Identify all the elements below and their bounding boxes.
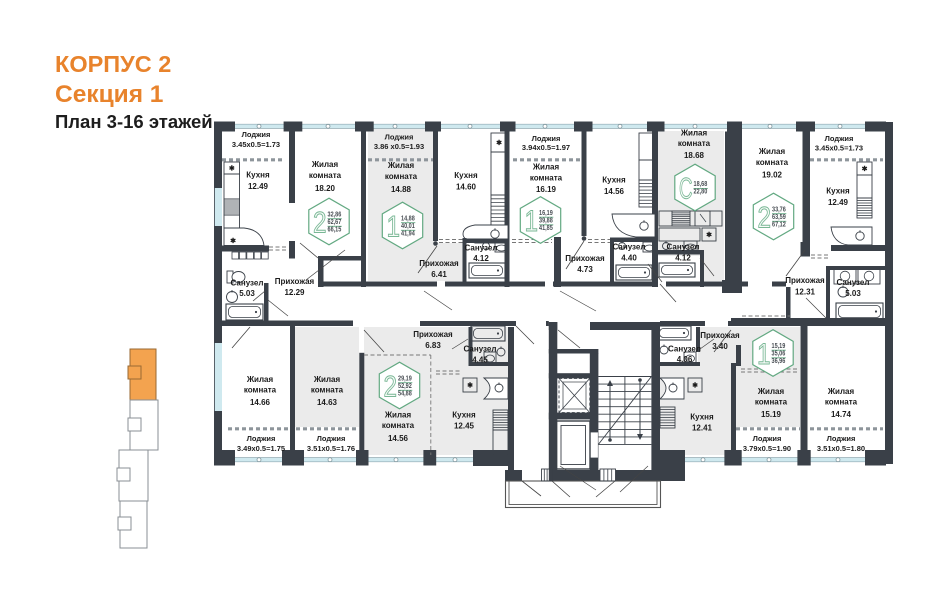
- svg-text:12.49: 12.49: [828, 198, 849, 207]
- svg-text:✱: ✱: [692, 382, 698, 390]
- svg-text:КОРПУС 2: КОРПУС 2: [55, 51, 171, 77]
- svg-text:18,68: 18,68: [694, 181, 708, 188]
- svg-text:2: 2: [313, 207, 327, 240]
- svg-text:комната: комната: [825, 398, 858, 407]
- svg-text:3.45х0.5=1.73: 3.45х0.5=1.73: [815, 143, 863, 152]
- svg-text:16,19: 16,19: [539, 210, 553, 217]
- svg-text:Жилая: Жилая: [246, 375, 274, 384]
- svg-text:Санузел: Санузел: [668, 345, 701, 354]
- svg-text:План 3-16 этажей: План 3-16 этажей: [55, 111, 213, 132]
- svg-text:4.12: 4.12: [675, 254, 691, 263]
- svg-text:12.41: 12.41: [692, 424, 713, 433]
- svg-text:Жилая: Жилая: [387, 161, 415, 170]
- svg-text:✱: ✱: [496, 139, 502, 147]
- svg-text:Жилая: Жилая: [311, 160, 339, 169]
- svg-text:комната: комната: [382, 421, 415, 430]
- svg-text:12.31: 12.31: [795, 288, 816, 297]
- svg-text:4.06: 4.06: [677, 355, 693, 364]
- svg-text:14.88: 14.88: [391, 185, 412, 194]
- svg-text:Санузел: Санузел: [464, 345, 497, 354]
- svg-text:40,01: 40,01: [401, 223, 415, 230]
- svg-text:комната: комната: [756, 158, 789, 167]
- svg-text:✱: ✱: [229, 165, 235, 173]
- svg-text:Санузел: Санузел: [231, 279, 264, 288]
- svg-text:Прихожая: Прихожая: [700, 331, 740, 340]
- svg-text:16.19: 16.19: [536, 185, 557, 194]
- svg-text:Санузел: Санузел: [667, 243, 700, 252]
- svg-text:15,19: 15,19: [772, 343, 786, 350]
- svg-text:C: C: [679, 173, 693, 206]
- svg-text:18.20: 18.20: [315, 184, 336, 193]
- svg-text:✱: ✱: [862, 165, 868, 173]
- svg-text:3.45х0.5=1.73: 3.45х0.5=1.73: [232, 140, 280, 149]
- svg-text:комната: комната: [244, 385, 277, 394]
- svg-text:52,92: 52,92: [398, 383, 412, 390]
- svg-text:41,94: 41,94: [401, 231, 415, 238]
- svg-text:41,85: 41,85: [539, 225, 553, 232]
- svg-text:36,96: 36,96: [772, 358, 786, 365]
- svg-text:Санузел: Санузел: [465, 244, 498, 253]
- svg-text:62,67: 62,67: [328, 219, 342, 226]
- svg-text:66,15: 66,15: [328, 227, 342, 234]
- svg-text:Жилая: Жилая: [827, 387, 855, 396]
- svg-text:1: 1: [525, 205, 539, 238]
- svg-text:комната: комната: [385, 172, 418, 181]
- svg-text:29,19: 29,19: [398, 375, 412, 382]
- svg-text:Кухня: Кухня: [246, 171, 270, 180]
- svg-text:4.12: 4.12: [473, 254, 489, 263]
- svg-text:18.68: 18.68: [684, 151, 705, 160]
- svg-text:Кухня: Кухня: [690, 413, 714, 422]
- svg-text:3.86 х0.5=1.93: 3.86 х0.5=1.93: [374, 142, 424, 151]
- svg-text:Санузел: Санузел: [837, 278, 870, 287]
- svg-text:4.45: 4.45: [472, 356, 488, 365]
- svg-text:19.02: 19.02: [762, 171, 783, 180]
- svg-text:комната: комната: [678, 139, 711, 148]
- svg-text:Жилая: Жилая: [680, 129, 708, 138]
- svg-text:12.49: 12.49: [248, 182, 269, 191]
- svg-text:2: 2: [384, 371, 398, 404]
- svg-text:Прихожая: Прихожая: [785, 276, 825, 285]
- svg-text:3.49х0.5=1.75: 3.49х0.5=1.75: [237, 444, 285, 453]
- svg-text:33,76: 33,76: [772, 206, 786, 213]
- svg-text:комната: комната: [755, 398, 788, 407]
- svg-text:67,12: 67,12: [772, 222, 786, 229]
- svg-text:Кухня: Кухня: [826, 187, 850, 196]
- svg-text:4.73: 4.73: [577, 265, 593, 274]
- svg-text:Жилая: Жилая: [757, 387, 785, 396]
- svg-text:63,59: 63,59: [772, 214, 786, 221]
- svg-text:5.03: 5.03: [239, 289, 255, 298]
- svg-text:2: 2: [758, 202, 772, 235]
- svg-text:4.40: 4.40: [621, 254, 637, 263]
- svg-text:1: 1: [757, 338, 771, 371]
- svg-text:Лоджия: Лоджия: [753, 434, 782, 443]
- svg-text:14.56: 14.56: [604, 187, 625, 196]
- svg-text:22,80: 22,80: [694, 189, 708, 196]
- svg-text:35,06: 35,06: [772, 350, 786, 357]
- svg-text:✱: ✱: [467, 382, 473, 390]
- svg-text:12.29: 12.29: [284, 288, 305, 297]
- svg-text:6.41: 6.41: [431, 270, 447, 279]
- svg-text:Жилая: Жилая: [532, 163, 560, 172]
- svg-text:Лоджия: Лоджия: [247, 434, 276, 443]
- svg-text:✱: ✱: [230, 237, 236, 245]
- svg-text:3.51х0.5=1.76: 3.51х0.5=1.76: [307, 444, 355, 453]
- svg-text:6.83: 6.83: [425, 341, 441, 350]
- svg-text:14.63: 14.63: [317, 398, 338, 407]
- svg-text:Лоджия: Лоджия: [827, 434, 856, 443]
- svg-text:комната: комната: [530, 174, 563, 183]
- svg-text:Кухня: Кухня: [602, 176, 626, 185]
- svg-text:32,86: 32,86: [328, 211, 342, 218]
- svg-text:Кухня: Кухня: [452, 411, 476, 420]
- svg-text:3.94х0.5=1.97: 3.94х0.5=1.97: [522, 143, 570, 152]
- svg-text:5.03: 5.03: [845, 289, 861, 298]
- svg-text:Лоджия: Лоджия: [532, 134, 561, 143]
- svg-text:3.79х0.5=1.90: 3.79х0.5=1.90: [743, 444, 791, 453]
- svg-text:3.51х0.5=1.80: 3.51х0.5=1.80: [817, 444, 865, 453]
- svg-text:3.40: 3.40: [712, 342, 728, 351]
- svg-text:14.74: 14.74: [831, 410, 852, 419]
- svg-text:Прихожая: Прихожая: [419, 259, 459, 268]
- svg-text:14.60: 14.60: [456, 183, 477, 192]
- svg-text:Лоджия: Лоджия: [825, 134, 854, 143]
- svg-text:14.66: 14.66: [250, 398, 271, 407]
- svg-text:14.56: 14.56: [388, 434, 409, 443]
- svg-text:54,88: 54,88: [398, 391, 412, 398]
- svg-text:39,88: 39,88: [539, 217, 553, 224]
- svg-text:комната: комната: [311, 385, 344, 394]
- svg-text:12.45: 12.45: [454, 422, 475, 431]
- svg-text:Лоджия: Лоджия: [385, 132, 414, 141]
- svg-text:14,88: 14,88: [401, 215, 415, 222]
- svg-text:Лоджия: Лоджия: [242, 130, 271, 139]
- svg-text:Жилая: Жилая: [758, 147, 786, 156]
- svg-text:Санузел: Санузел: [613, 243, 646, 252]
- svg-text:15.19: 15.19: [761, 410, 782, 419]
- svg-text:1: 1: [387, 211, 401, 244]
- svg-text:комната: комната: [309, 171, 342, 180]
- svg-text:Секция 1: Секция 1: [55, 81, 163, 108]
- svg-text:Кухня: Кухня: [454, 171, 478, 180]
- svg-text:✱: ✱: [706, 231, 712, 239]
- svg-text:Жилая: Жилая: [313, 375, 341, 384]
- svg-text:Жилая: Жилая: [384, 411, 412, 420]
- svg-text:Лоджия: Лоджия: [317, 434, 346, 443]
- svg-text:Прихожая: Прихожая: [565, 254, 605, 263]
- svg-text:Прихожая: Прихожая: [413, 330, 453, 339]
